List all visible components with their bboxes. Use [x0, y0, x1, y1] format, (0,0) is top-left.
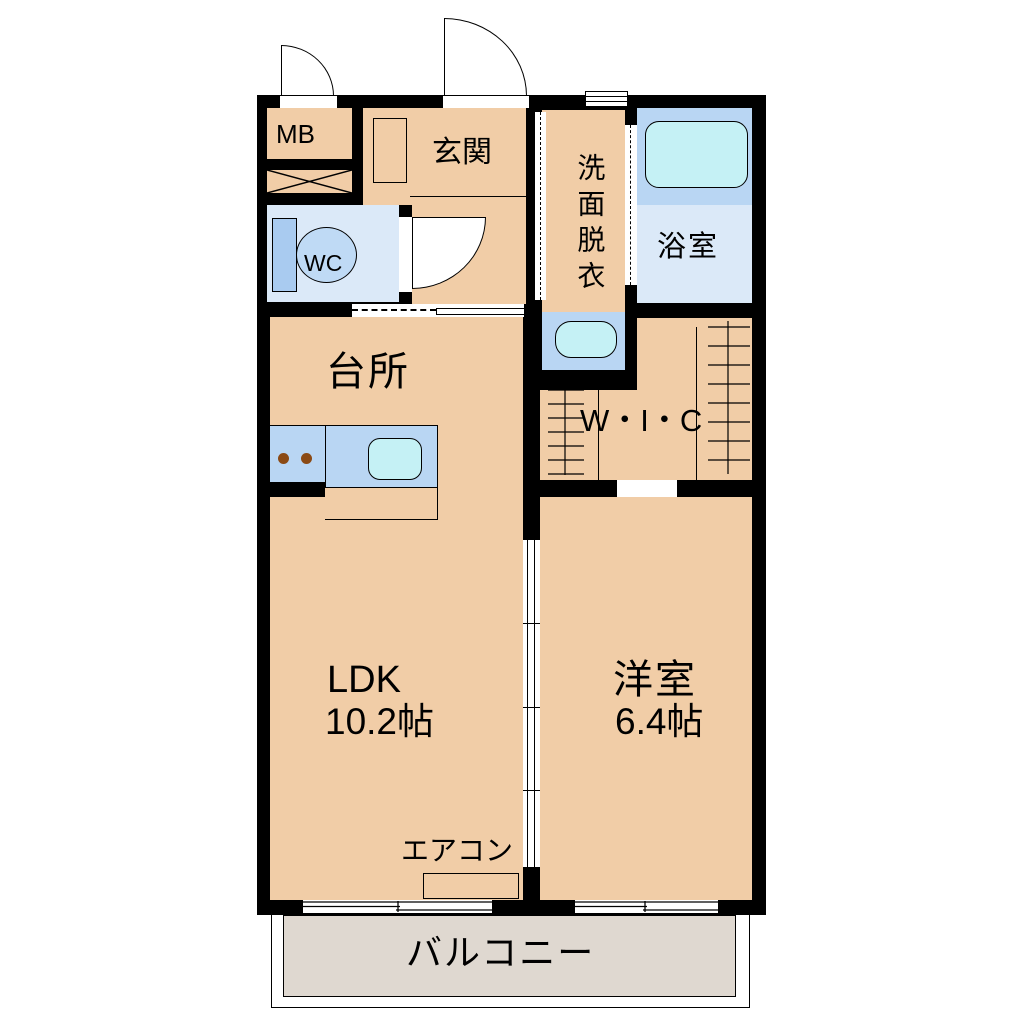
kitchen-label: 台所: [326, 351, 410, 393]
shoe-cabinet: [373, 118, 407, 183]
entrance-step-line: [410, 196, 526, 197]
opening-rail-end: [436, 308, 437, 315]
toilet-label: WC: [304, 251, 342, 275]
bedroom-label: 洋室: [613, 659, 697, 701]
shaft-box: [267, 170, 352, 193]
balcony-label: バルコニー: [406, 934, 595, 972]
washroom-label: 洗面脱衣: [575, 153, 604, 297]
mb-label: MB: [276, 121, 315, 148]
toilet-tank: [272, 218, 297, 292]
sliding-door-tick-2: [523, 707, 540, 708]
aircon-label: エアコン: [401, 836, 513, 865]
bathroom-folding-door: [625, 125, 637, 285]
washroom-sliding-door-dash: [540, 112, 541, 300]
opening-rail-bottom: [436, 314, 524, 315]
entrance-label: 玄関: [432, 137, 492, 169]
sliding-door-tick-1: [523, 623, 540, 624]
sliding-door-panel-line-1: [527, 540, 528, 867]
bathtub: [645, 121, 748, 188]
hall-kitchen-dashed-line: [352, 309, 436, 311]
mb-door-opening: [280, 96, 337, 108]
counter-extension: [325, 488, 438, 520]
entrance-door-opening: [443, 96, 529, 108]
toilet-door-opening: [399, 217, 412, 292]
closet-door-opening: [617, 480, 677, 497]
ldk-bedroom-sliding-door: [523, 540, 540, 867]
sliding-door-panel-line-2: [534, 540, 535, 867]
mb-door-swing-arc: [281, 45, 334, 96]
bedroom-area-label: 6.4帖: [615, 703, 703, 742]
sliding-door-tick-3: [523, 790, 540, 791]
shaft-cross-icon: [267, 170, 352, 193]
ldk-area-label: 10.2帖: [325, 703, 434, 742]
ldk-floor: [270, 317, 523, 900]
ldk-label: LDK: [327, 661, 401, 701]
aircon-outline: [423, 873, 519, 899]
stove-burner-2: [301, 453, 312, 464]
closet-label: W・I・C: [580, 405, 702, 438]
bathroom-label: 浴室: [657, 232, 719, 262]
opening-rail-top: [436, 308, 524, 309]
ldk-window: [303, 900, 492, 913]
floorplan-canvas: MB 玄関 WC 洗面脱衣 浴室 W・I・C 台所 LDK 10.2帖 洋室 6…: [0, 0, 1020, 1020]
bedroom-window: [575, 900, 718, 913]
washroom-window: [585, 91, 628, 107]
bathroom-folding-door-dash: [630, 125, 631, 285]
closet-hanger-right-icon: [706, 320, 752, 476]
washbasin-bowl: [555, 321, 617, 358]
stove-burner-1: [278, 453, 289, 464]
counter-divider: [270, 482, 325, 497]
kitchen-sink: [368, 438, 422, 480]
entrance-door-swing-arc: [444, 18, 527, 96]
